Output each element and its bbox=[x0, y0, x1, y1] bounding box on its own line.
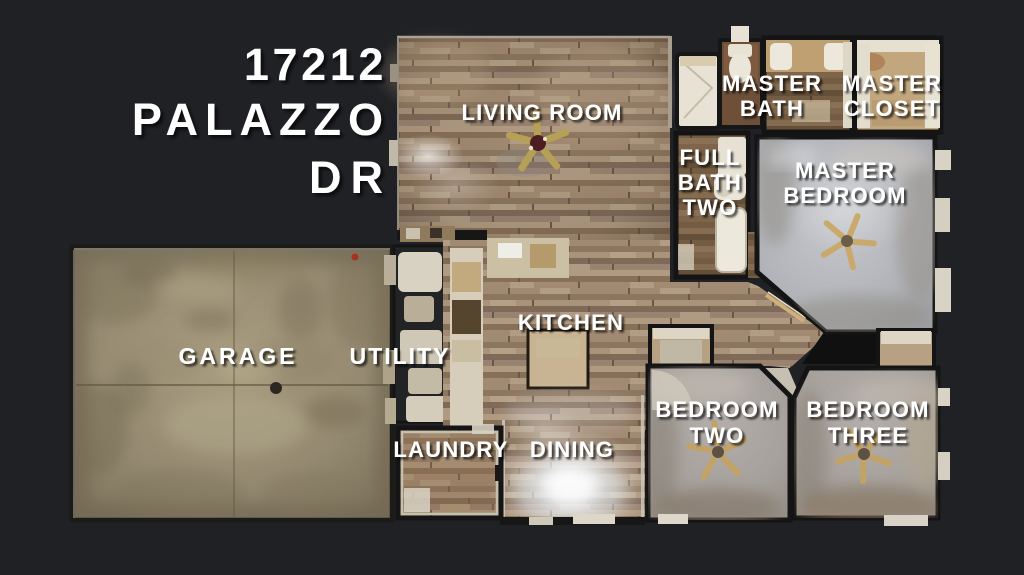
svg-text:DR: DR bbox=[309, 152, 392, 203]
svg-text:UTILITY: UTILITY bbox=[350, 343, 451, 369]
svg-text:BATH: BATH bbox=[740, 96, 804, 121]
svg-text:MASTER: MASTER bbox=[842, 71, 942, 96]
svg-text:GARAGE: GARAGE bbox=[179, 343, 298, 369]
svg-text:KITCHEN: KITCHEN bbox=[518, 310, 624, 335]
svg-text:FULL: FULL bbox=[679, 145, 740, 170]
svg-text:BEDROOM: BEDROOM bbox=[783, 183, 906, 208]
svg-text:PALAZZO: PALAZZO bbox=[132, 94, 390, 145]
svg-text:MASTER: MASTER bbox=[722, 71, 822, 96]
svg-text:TWO: TWO bbox=[683, 195, 738, 220]
svg-text:BEDROOM: BEDROOM bbox=[655, 397, 778, 422]
svg-text:CLOSET: CLOSET bbox=[844, 96, 940, 121]
svg-text:LIVING ROOM: LIVING ROOM bbox=[461, 100, 622, 125]
svg-text:MASTER: MASTER bbox=[795, 158, 895, 183]
svg-text:17212: 17212 bbox=[244, 39, 387, 90]
svg-text:LAUNDRY: LAUNDRY bbox=[393, 437, 508, 462]
svg-text:BEDROOM: BEDROOM bbox=[806, 397, 929, 422]
svg-text:BATH: BATH bbox=[678, 170, 742, 195]
svg-text:TWO: TWO bbox=[690, 423, 745, 448]
svg-text:THREE: THREE bbox=[828, 423, 909, 448]
svg-text:DINING: DINING bbox=[530, 437, 614, 462]
